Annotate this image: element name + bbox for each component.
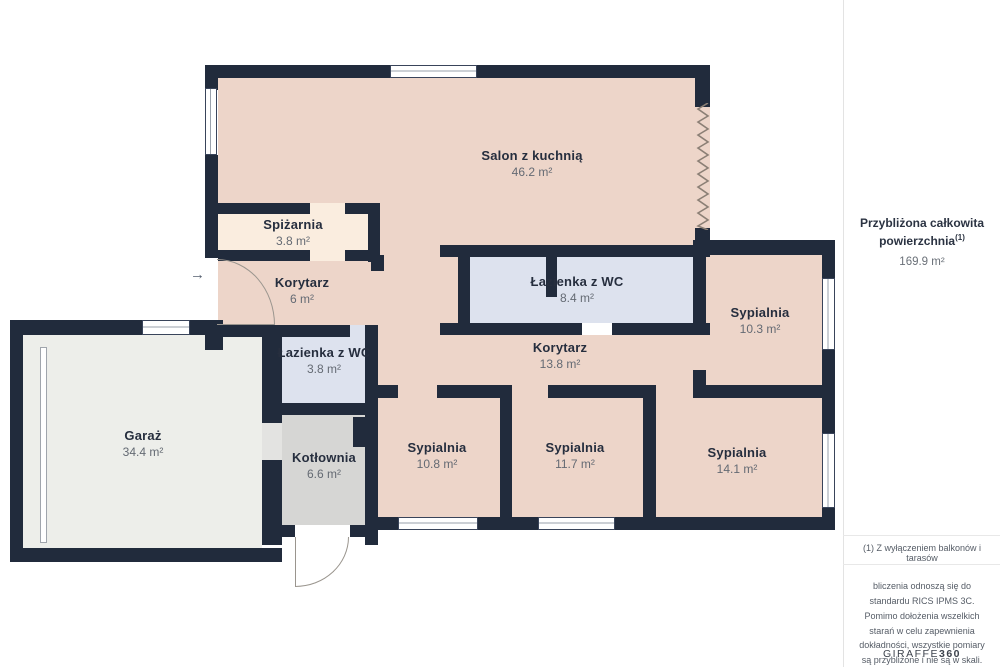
wall xyxy=(262,403,378,415)
footnote-marker: (1) xyxy=(955,233,965,242)
wall xyxy=(345,203,370,214)
wall xyxy=(10,320,142,335)
wall xyxy=(612,323,710,335)
room-label-bedroom-141: Sypialnia 14.1 m² xyxy=(708,445,767,477)
room-label-bedroom-108: Sypialnia 10.8 m² xyxy=(408,440,467,472)
window xyxy=(205,88,217,155)
wall xyxy=(477,65,710,78)
wall xyxy=(218,203,310,214)
wall xyxy=(693,240,706,323)
wall xyxy=(458,257,470,323)
sidebar-rule xyxy=(843,564,1000,565)
wall xyxy=(10,320,23,562)
floor-plan: → Salon z kuchnią 46.2 m² Spiżarnia 3.8 … xyxy=(0,0,1000,667)
boiler-door-arc xyxy=(295,537,349,587)
bathroom-84-door-threshold xyxy=(582,323,612,335)
room-label-pantry: Spiżarnia 3.8 m² xyxy=(263,217,323,249)
garage-door xyxy=(40,347,47,543)
window xyxy=(398,517,478,530)
wall xyxy=(353,417,378,447)
window xyxy=(822,278,835,350)
wall xyxy=(218,250,310,261)
wall xyxy=(500,385,512,517)
wall xyxy=(478,517,538,530)
room-label-hallway-138: Korytarz 13.8 m² xyxy=(533,340,587,372)
wall xyxy=(615,517,835,530)
total-area-title: Przybliżona całkowita powierzchnia(1) xyxy=(844,214,1000,250)
room-label-bedroom-103: Sypialnia 10.3 m² xyxy=(731,305,790,337)
sidebar-divider xyxy=(843,0,844,667)
room-label-bathroom-84: Łazienka z WC 8.4 m² xyxy=(531,274,624,306)
room-label-salon: Salon z kuchnią 46.2 m² xyxy=(481,148,582,180)
window xyxy=(142,320,190,335)
window xyxy=(822,433,835,508)
wall xyxy=(345,250,370,261)
wall xyxy=(368,517,398,530)
window xyxy=(390,65,477,78)
wall xyxy=(693,240,835,255)
wall xyxy=(205,65,218,90)
room-label-bathroom-38: Łazienka z WC 3.8 m² xyxy=(278,345,371,377)
window xyxy=(538,517,615,530)
wall xyxy=(205,155,218,258)
boiler-exterior-door-threshold xyxy=(295,525,350,537)
entry-arrow-icon: → xyxy=(190,266,205,283)
wall xyxy=(440,323,582,335)
wall xyxy=(440,245,710,257)
wall xyxy=(262,525,295,537)
wall xyxy=(643,385,656,517)
garage-boiler-door-threshold xyxy=(262,423,282,460)
wall xyxy=(205,65,390,78)
wall xyxy=(693,385,835,398)
giraffe360-logo: GIRAFFE360 xyxy=(844,648,1000,660)
wall xyxy=(371,255,384,271)
room-label-boiler-room: Kotłownia 6.6 m² xyxy=(292,450,356,482)
wall xyxy=(548,385,656,398)
wall xyxy=(695,65,710,107)
room-label-garage: Garaż 34.4 m² xyxy=(123,428,164,460)
room-label-hallway-6: Korytarz 6 m² xyxy=(275,275,329,307)
room-label-bedroom-117: Sypialnia 11.7 m² xyxy=(546,440,605,472)
zigzag-wall-break-icon xyxy=(696,103,710,230)
total-area-value: 169.9 m² xyxy=(844,256,1000,268)
sidebar-rule xyxy=(843,535,1000,536)
footnote-text: (1) Z wyłączeniem balkonów i tarasów xyxy=(844,543,1000,563)
wall xyxy=(10,548,282,562)
